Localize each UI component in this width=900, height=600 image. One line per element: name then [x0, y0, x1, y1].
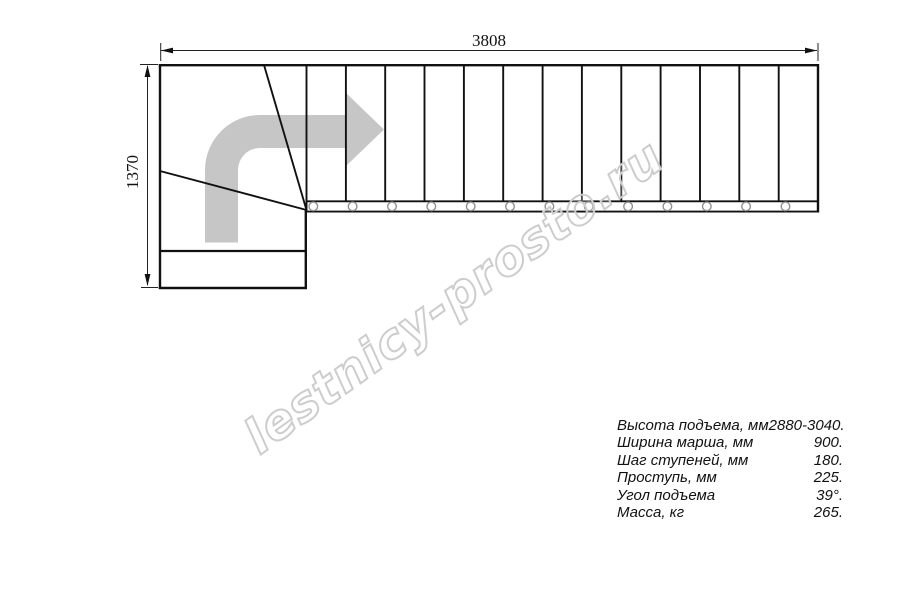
- spec-label: Ширина марша, мм: [617, 434, 753, 451]
- spec-value: 180.: [814, 452, 843, 469]
- spec-label: Масса, кг: [617, 504, 684, 521]
- spec-row-flight-width: Ширина марша, мм 900.: [617, 434, 843, 451]
- tread-lines: [307, 65, 779, 212]
- spec-label: Шаг ступеней, мм: [617, 452, 748, 469]
- spec-row-height: Высота подъема, мм 2880-3040.: [617, 417, 843, 434]
- spec-value: 265.: [814, 504, 843, 521]
- staircase-drawing-page: 3808 1370 lestnicy-prosto.ru Высота подъ…: [0, 0, 900, 600]
- spec-table: Высота подъема, мм 2880-3040. Ширина мар…: [617, 417, 843, 522]
- stair-outline: [159, 64, 818, 289]
- spec-row-tread-depth: Проступь, мм 225.: [617, 469, 843, 486]
- stringer-bolt-holes: [309, 202, 790, 211]
- dimension-length-label: 3808: [472, 31, 506, 50]
- dimension-width-label: 1370: [123, 155, 142, 189]
- spec-row-angle: Угол подъема 39°.: [617, 487, 843, 504]
- spec-value: 39°.: [816, 487, 843, 504]
- spec-value: 225.: [814, 469, 843, 486]
- spec-value: 2880-3040.: [769, 417, 845, 434]
- spec-label: Угол подъема: [617, 487, 715, 504]
- spec-value: 900.: [814, 434, 843, 451]
- spec-row-mass: Масса, кг 265.: [617, 504, 843, 521]
- spec-row-step-rise: Шаг ступеней, мм 180.: [617, 452, 843, 469]
- spec-label: Высота подъема, мм: [617, 417, 769, 434]
- spec-label: Проступь, мм: [617, 469, 717, 486]
